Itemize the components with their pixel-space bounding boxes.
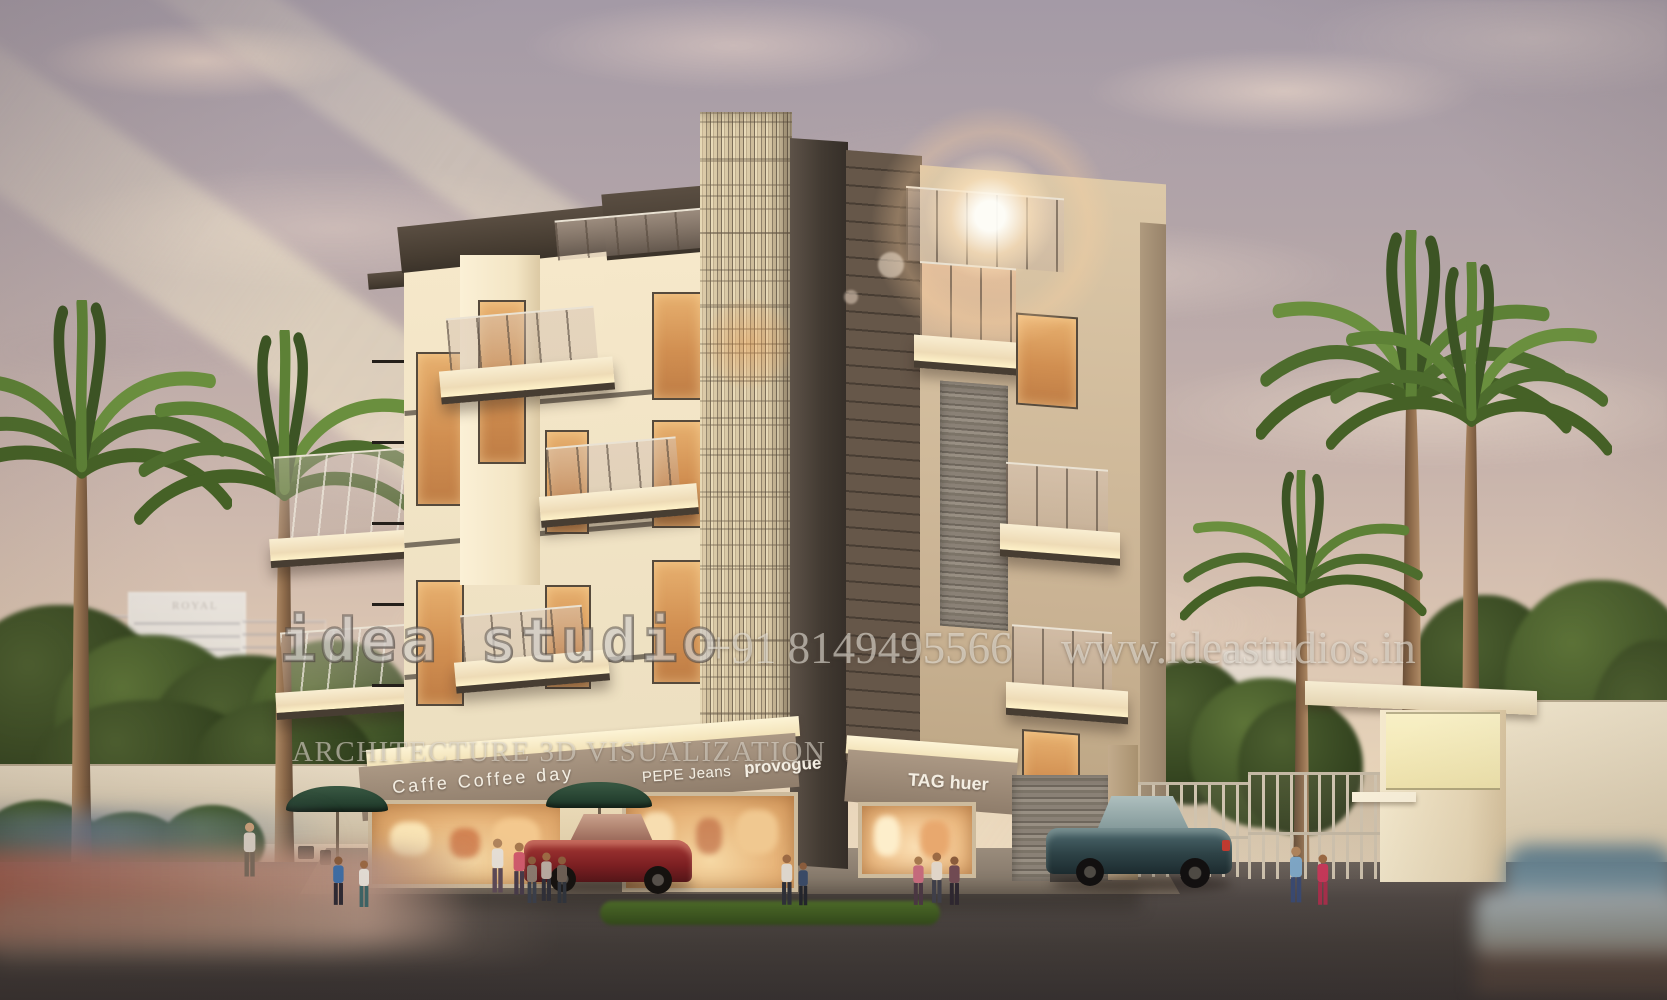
vignette-overlay xyxy=(0,0,1667,1000)
architectural-render-scene: ROYAL xyxy=(0,0,1667,1000)
